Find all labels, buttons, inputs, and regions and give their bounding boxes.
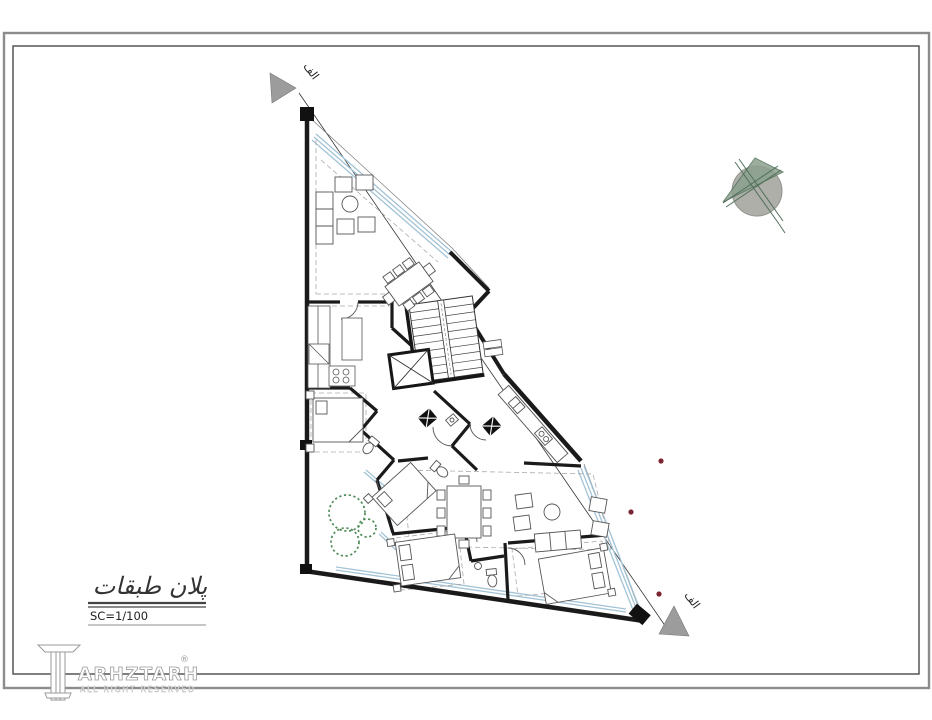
north-arrow-icon xyxy=(723,158,785,233)
logo-text: ARHZTARH xyxy=(78,664,200,685)
floor-plan-drawing: الف الف xyxy=(0,0,932,720)
entry-steps xyxy=(483,339,503,356)
plan-title: پلان طبقات xyxy=(93,572,208,600)
elevator xyxy=(389,349,433,388)
section-label-top: الف xyxy=(301,60,322,82)
section-marker-top xyxy=(270,73,296,103)
section-marker-bottom xyxy=(659,606,689,636)
logo-tagline: ALL RIGHT RESERVED xyxy=(80,685,196,694)
sofa-set-lower xyxy=(513,493,609,552)
kitchen-upper xyxy=(308,306,362,388)
title-block: پلان طبقات SC=1/100 xyxy=(88,572,208,625)
bed-middle xyxy=(363,459,436,530)
trees xyxy=(329,495,376,556)
sofa-set-upper xyxy=(316,175,375,244)
bed-bottom-right xyxy=(538,543,616,607)
logo-column-icon xyxy=(38,645,80,700)
kitchen-lower xyxy=(498,385,568,462)
plan-scale: SC=1/100 xyxy=(90,609,148,623)
logo-registered: ® xyxy=(180,655,189,665)
bed-upper-left xyxy=(306,391,363,452)
section-label-bottom: الف xyxy=(682,589,703,611)
drawing-sheet: الف الف xyxy=(0,0,932,720)
logo: ARHZTARH ® ALL RIGHT RESERVED xyxy=(38,645,200,700)
red-dots xyxy=(628,458,663,596)
